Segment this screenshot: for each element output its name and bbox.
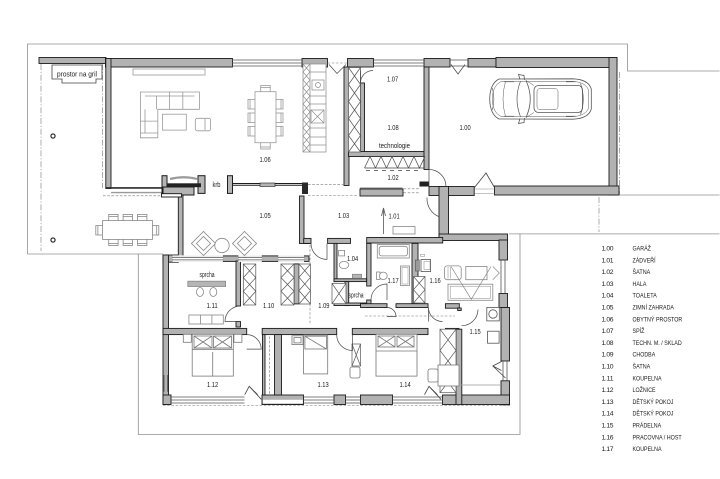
svg-text:1.01: 1.01 [602, 257, 614, 264]
svg-text:1.07: 1.07 [602, 328, 614, 335]
svg-text:KOUPELNA: KOUPELNA [633, 375, 662, 382]
svg-text:1.03: 1.03 [602, 281, 614, 288]
svg-text:1.17: 1.17 [602, 446, 614, 453]
svg-text:1.09: 1.09 [318, 303, 329, 310]
svg-text:CHODBA: CHODBA [633, 352, 656, 359]
svg-text:technologie: technologie [379, 143, 410, 150]
svg-text:1.17: 1.17 [388, 278, 399, 285]
svg-text:1.04: 1.04 [602, 293, 614, 300]
svg-text:1.12: 1.12 [602, 387, 614, 394]
svg-text:1.11: 1.11 [602, 375, 614, 382]
svg-text:1.01: 1.01 [389, 214, 400, 221]
svg-text:PRACOVNA / HOST: PRACOVNA / HOST [633, 434, 682, 441]
svg-text:KOUPELNA: KOUPELNA [633, 446, 662, 453]
svg-text:ZIMNÍ ZAHRADA: ZIMNÍ ZAHRADA [633, 303, 675, 312]
svg-text:1.05: 1.05 [602, 305, 614, 312]
svg-text:1.13: 1.13 [602, 399, 614, 406]
svg-text:1.13: 1.13 [318, 382, 329, 389]
svg-text:1.16: 1.16 [602, 434, 614, 441]
svg-text:prostor na gril: prostor na gril [57, 72, 97, 79]
svg-text:1.06: 1.06 [260, 157, 271, 164]
svg-text:PRÁDELNA: PRÁDELNA [633, 421, 662, 430]
svg-text:sprcha: sprcha [349, 293, 364, 300]
svg-text:1.09: 1.09 [602, 352, 614, 359]
svg-text:sprcha: sprcha [200, 272, 215, 279]
svg-text:1.14: 1.14 [400, 382, 411, 389]
svg-text:1.11: 1.11 [207, 303, 218, 310]
svg-text:1.15: 1.15 [470, 329, 481, 336]
svg-text:GARÁŽ: GARÁŽ [633, 244, 651, 253]
svg-text:1.04: 1.04 [347, 256, 358, 263]
svg-text:1.14: 1.14 [602, 411, 614, 418]
svg-text:1.03: 1.03 [338, 213, 349, 220]
svg-text:OBYTNÝ PROSTOR: OBYTNÝ PROSTOR [633, 314, 683, 323]
svg-text:DĚTSKÝ POKOJ: DĚTSKÝ POKOJ [633, 409, 674, 418]
svg-text:TECHN. M. / SKLAD: TECHN. M. / SKLAD [633, 340, 682, 347]
svg-text:1.00: 1.00 [460, 125, 471, 132]
svg-text:1.06: 1.06 [602, 316, 614, 323]
svg-text:1.15: 1.15 [602, 423, 614, 430]
svg-text:1.05: 1.05 [260, 213, 271, 220]
svg-text:1.07: 1.07 [387, 77, 398, 84]
svg-text:HALA: HALA [633, 281, 647, 288]
svg-text:1.08: 1.08 [388, 125, 399, 132]
svg-text:DĚTSKÝ POKOJ: DĚTSKÝ POKOJ [633, 397, 674, 406]
svg-text:ŠATNA: ŠATNA [633, 362, 651, 371]
svg-text:1.16: 1.16 [430, 278, 441, 285]
svg-text:1.00: 1.00 [602, 246, 614, 253]
svg-text:ŠATNA: ŠATNA [633, 267, 651, 276]
svg-text:1.08: 1.08 [602, 340, 614, 347]
svg-text:1.02: 1.02 [388, 175, 399, 182]
svg-text:ZÁDVEŘÍ: ZÁDVEŘÍ [633, 255, 656, 264]
svg-text:1.10: 1.10 [263, 303, 274, 310]
svg-text:1.10: 1.10 [602, 364, 614, 371]
svg-text:LOŽNICE: LOŽNICE [633, 385, 656, 394]
svg-text:1.02: 1.02 [602, 269, 614, 276]
svg-text:1.12: 1.12 [207, 382, 218, 389]
svg-text:krb: krb [213, 182, 221, 189]
svg-text:TOALETA: TOALETA [633, 293, 658, 300]
svg-text:SPÍŽ: SPÍŽ [633, 326, 645, 335]
